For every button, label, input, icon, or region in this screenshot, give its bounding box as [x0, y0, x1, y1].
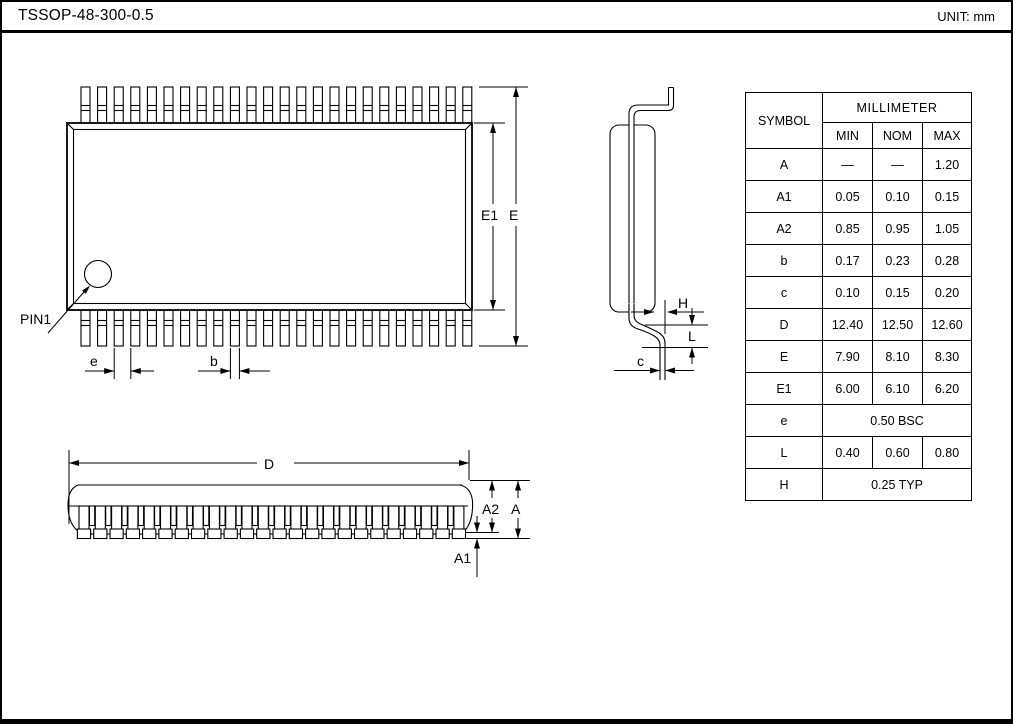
- dim-label-e: E: [509, 207, 518, 223]
- dim-label-a2: A2: [482, 501, 499, 517]
- table-row: A20.850.951.05: [746, 213, 972, 245]
- dim-b-lines: [198, 348, 270, 379]
- table-row: c0.100.150.20: [746, 277, 972, 309]
- dimensions-table: SYMBOL MILLIMETER MIN NOM MAX A——1.20 A1…: [745, 92, 972, 501]
- table-row: E16.006.106.20: [746, 373, 972, 405]
- table-header-row: SYMBOL MILLIMETER: [746, 93, 972, 123]
- top-pins: [81, 87, 472, 123]
- pin1-label: PIN1: [20, 311, 51, 327]
- front-view: D A2 A A1: [68, 450, 530, 577]
- table-row: H0.25 TYP: [746, 469, 972, 501]
- bottom-pins: [81, 310, 472, 346]
- dim-label-a: A: [511, 501, 521, 517]
- dim-label-c: c: [637, 353, 644, 369]
- front-leads: [77, 506, 465, 539]
- dim-label-pitch: e: [90, 353, 98, 369]
- min-header-cell: MIN: [823, 123, 873, 149]
- table-row: L0.400.600.80: [746, 437, 972, 469]
- table-row: b0.170.230.28: [746, 245, 972, 277]
- dim-label-a1: A1: [454, 550, 471, 566]
- dim-label-e1: E1: [481, 207, 498, 223]
- dimension-table-container: SYMBOL MILLIMETER MIN NOM MAX A——1.20 A1…: [745, 92, 972, 501]
- table-row: A10.050.100.15: [746, 181, 972, 213]
- top-view: PIN1 E1 E e b: [20, 87, 528, 379]
- side-top-lead: [629, 88, 674, 321]
- table-row: E7.908.108.30: [746, 341, 972, 373]
- symbol-header-cell: SYMBOL: [746, 93, 823, 149]
- max-header-cell: MAX: [923, 123, 972, 149]
- table-row: A——1.20: [746, 149, 972, 181]
- dim-label-d: D: [264, 456, 274, 472]
- dim-label-l: L: [688, 328, 696, 344]
- side-bottom-lead: [629, 304, 665, 380]
- datasheet-page: TSSOP-48-300-0.5 UNIT: mm PIN1 E1 E: [0, 0, 1013, 724]
- nom-header-cell: NOM: [873, 123, 923, 149]
- package-body-outline: [67, 123, 472, 310]
- dim-l-lines: [642, 308, 708, 364]
- side-view: H L c: [610, 88, 708, 381]
- table-row: e0.50 BSC: [746, 405, 972, 437]
- dim-label-h: H: [678, 295, 688, 311]
- table-row: D12.4012.5012.60: [746, 309, 972, 341]
- dim-label-b: b: [210, 353, 218, 369]
- millimeter-header-cell: MILLIMETER: [823, 93, 972, 123]
